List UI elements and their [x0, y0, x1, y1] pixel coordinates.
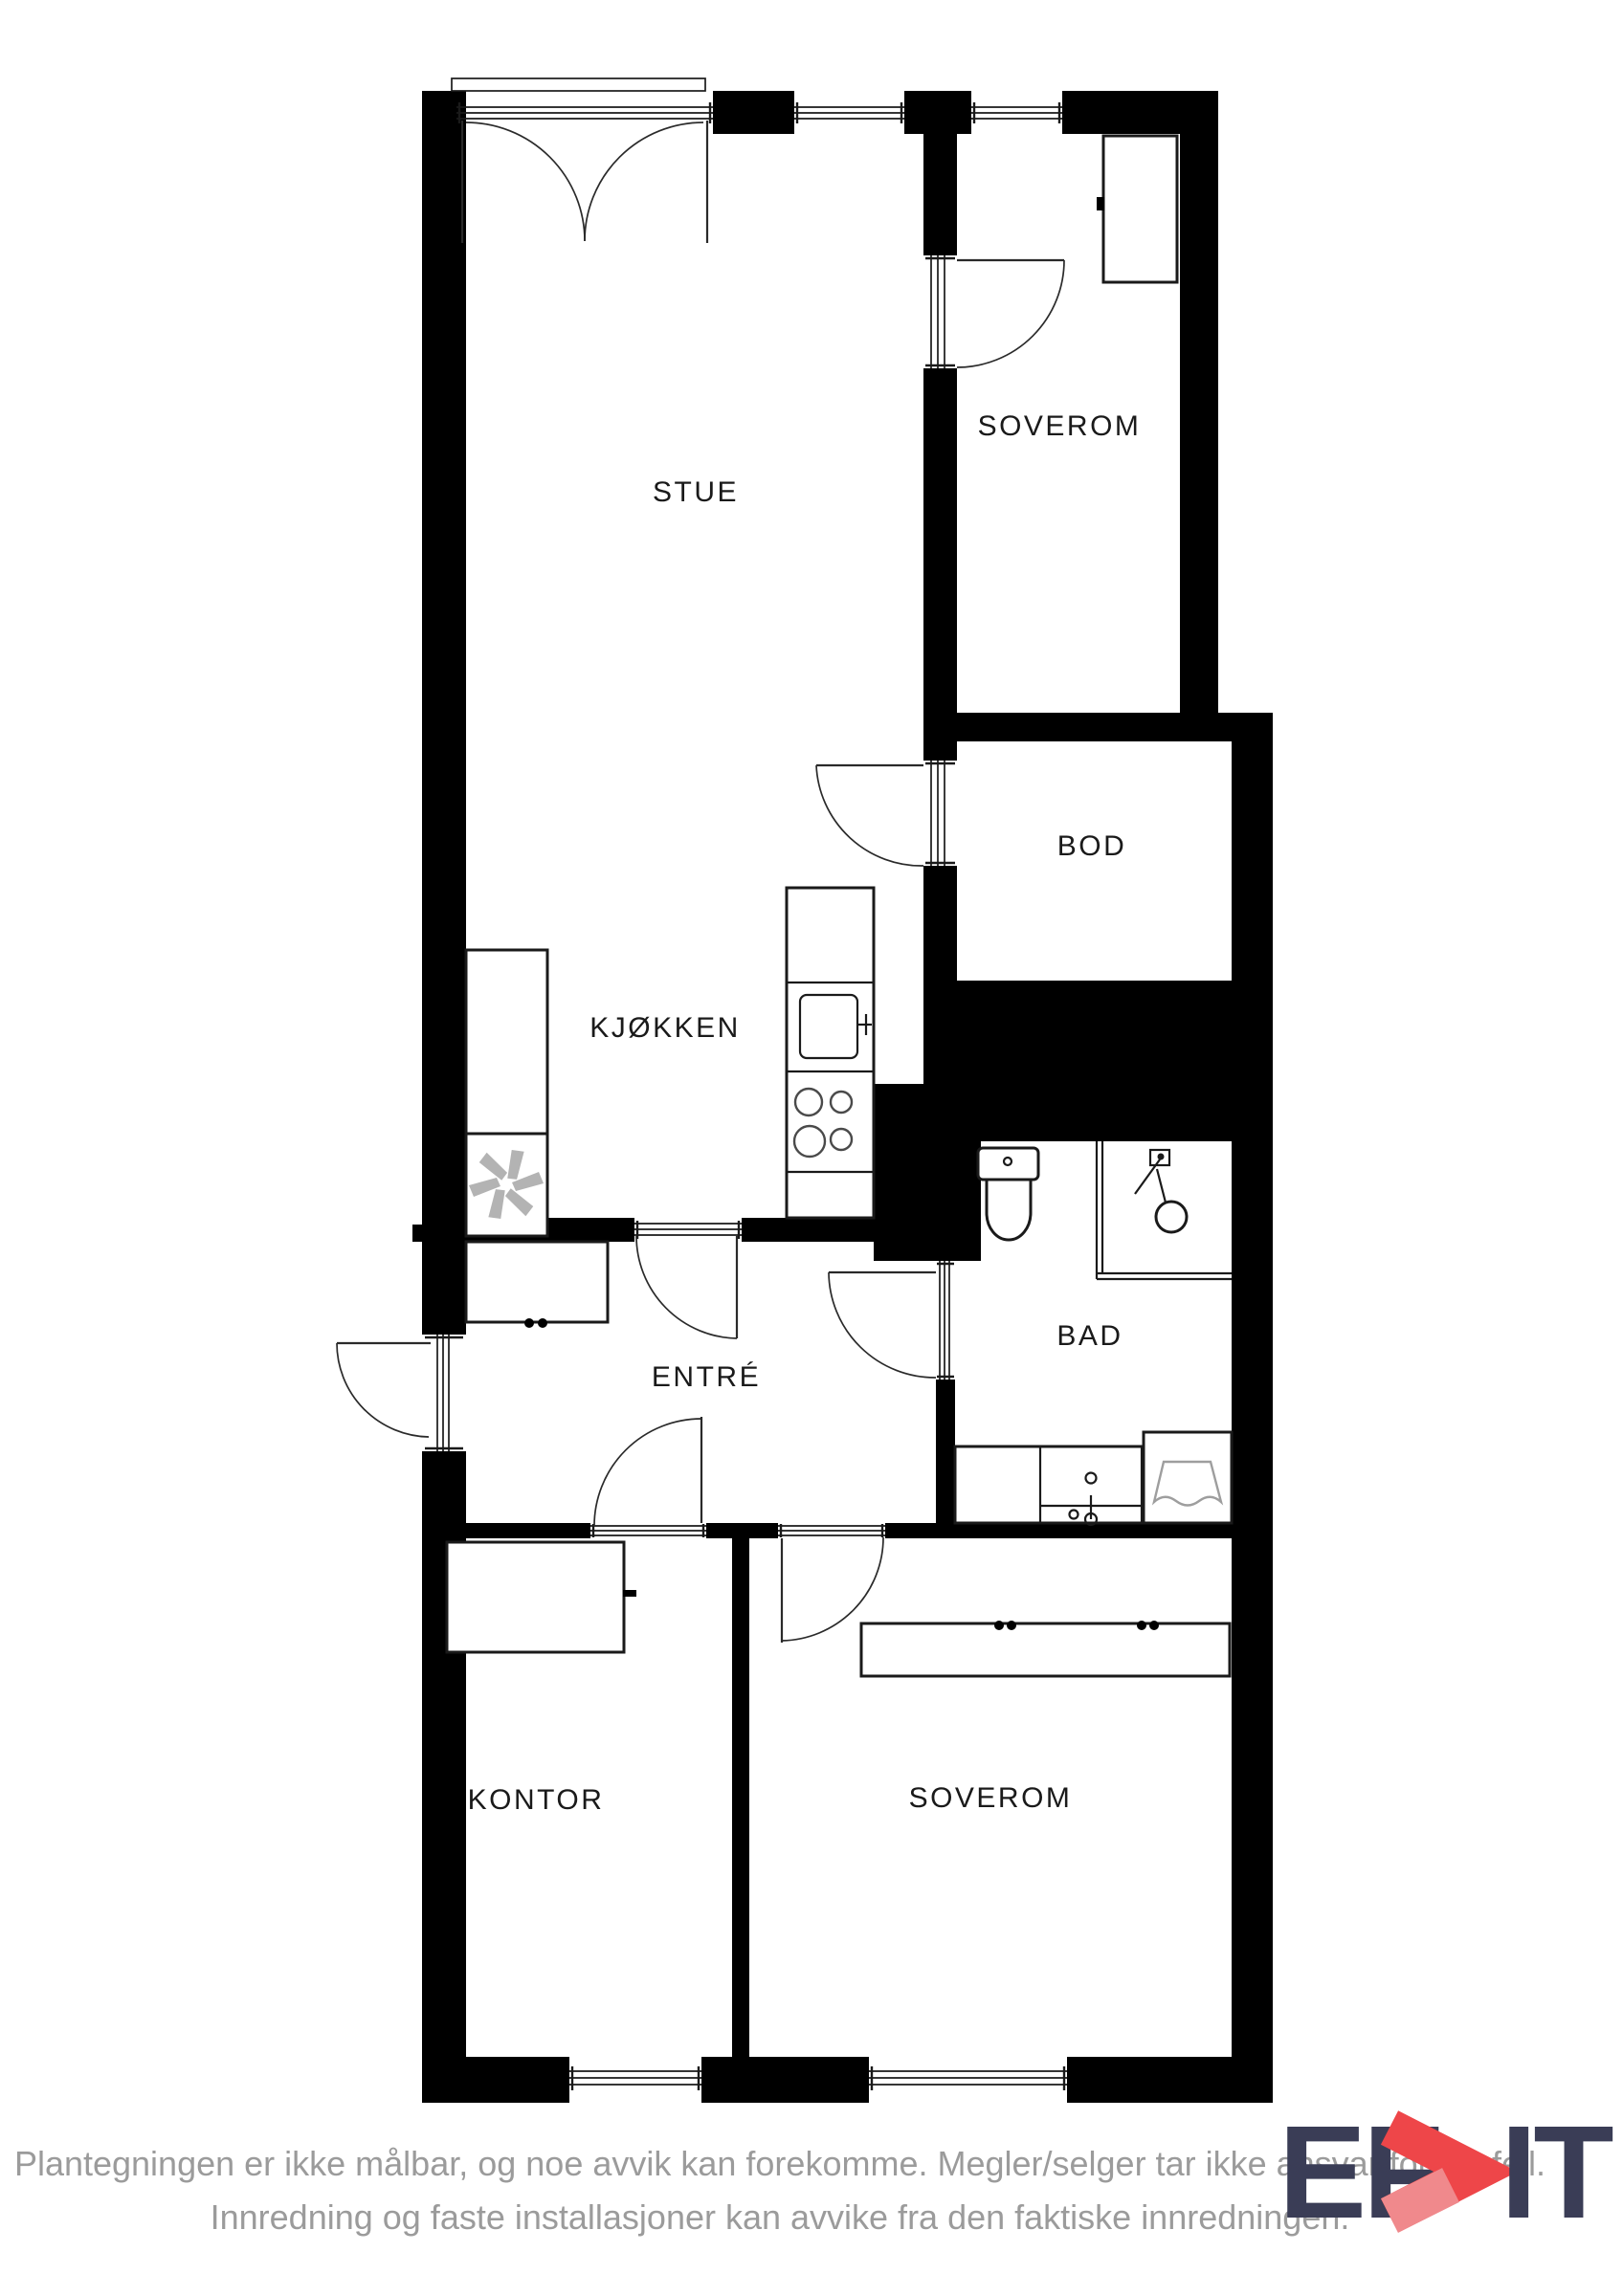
room-label-kontor: KONTOR [468, 1784, 605, 1816]
window-soverom-bottom [869, 2066, 1067, 2090]
washing-machine-icon [1144, 1432, 1232, 1523]
wardrobe-entre [466, 1242, 608, 1328]
kitchen-tall-cabinet [466, 950, 547, 1134]
handle [1137, 1621, 1146, 1630]
kitchen-counter [787, 888, 874, 1218]
room-label-soverom-top: SOVEROM [978, 410, 1142, 442]
floorplan-svg: STUE SOVEROM BOD KJØKKEN BAD ENTRÉ KONTO… [0, 0, 1623, 2296]
handle [1007, 1621, 1016, 1630]
door-kontor [590, 1417, 706, 1537]
wall-kitchen-south-2 [742, 1218, 874, 1242]
wall-entre-south-2 [706, 1523, 778, 1538]
door-soverom-top [925, 255, 1064, 368]
wall-kontor-divider [732, 1538, 749, 2057]
handle [994, 1621, 1004, 1630]
toilet-icon [978, 1148, 1038, 1240]
hook [623, 1590, 636, 1597]
room-label-bad: BAD [1056, 1320, 1123, 1352]
wall-top-4 [1062, 91, 1218, 134]
hook [538, 1318, 547, 1328]
wardrobe-kontor [447, 1542, 636, 1652]
wardrobe-soverom-bottom [861, 1621, 1230, 1676]
wall-top-2 [713, 91, 794, 134]
wall-chunk-left [874, 1084, 981, 1261]
balcony-threshold [452, 78, 705, 91]
wall-bad-divider [936, 1380, 955, 1523]
window-kontor-bottom [569, 2066, 701, 2090]
wall-right-lower [1232, 741, 1273, 2103]
wall-top-3 [904, 91, 971, 134]
window-stue-top [794, 102, 904, 123]
hook [524, 1318, 534, 1328]
fan-unit [466, 1134, 547, 1236]
wall-bottom-3 [1067, 2057, 1273, 2103]
wall-divider-2 [923, 368, 957, 713]
efkt-logo: EF IT [1278, 2099, 1612, 2246]
wall-divider-3 [923, 741, 957, 761]
room-label-stue: STUE [653, 476, 739, 508]
fixtures [447, 136, 1232, 1676]
wall-nub [412, 1225, 422, 1242]
door-entry [337, 1335, 463, 1451]
door-kjokken [634, 1221, 742, 1338]
wall-entre-south-1 [422, 1523, 590, 1538]
balcony-door [452, 78, 713, 243]
wall-divider-4 [923, 866, 957, 981]
wardrobe-soverom-top [1097, 136, 1177, 282]
logo-text-right: IT [1501, 2099, 1612, 2246]
wall-right-upper [1180, 134, 1218, 741]
wall-bottom-2 [701, 2057, 869, 2103]
wall-bottom-1 [422, 2057, 569, 2103]
shower-icon [1097, 1141, 1232, 1279]
wall-left-upper [422, 91, 466, 1335]
window-soverom-top [971, 102, 1062, 123]
wall-divider-1 [923, 134, 957, 255]
door-bad [829, 1261, 954, 1380]
handle [1149, 1621, 1159, 1630]
wardrobe-handle [1097, 197, 1104, 210]
wall-bod-top [923, 713, 1273, 741]
room-label-entre: ENTRÉ [652, 1361, 761, 1393]
door-bod [816, 761, 955, 866]
room-label-kjokken: KJØKKEN [589, 1012, 741, 1044]
room-label-soverom-bottom: SOVEROM [909, 1782, 1073, 1814]
disclaimer-line-2: Innredning og faste installasjoner kan a… [211, 2197, 1350, 2237]
wall-entre-south-3 [885, 1523, 1273, 1538]
room-label-bod: BOD [1057, 830, 1127, 862]
